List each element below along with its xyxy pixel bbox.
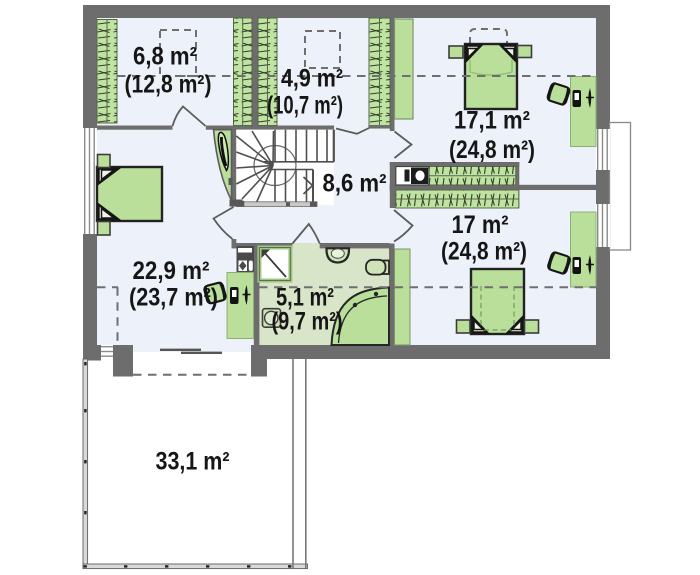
- svg-text:(9,7 m²): (9,7 m²): [272, 308, 343, 336]
- svg-text:6,8 m²: 6,8 m²: [133, 43, 197, 71]
- svg-text:(10,7 m²): (10,7 m²): [267, 92, 343, 120]
- svg-text:(12,8 m²): (12,8 m²): [125, 71, 212, 99]
- svg-text:(24,8 m²): (24,8 m²): [441, 238, 527, 266]
- svg-text:4,9 m²: 4,9 m²: [281, 65, 343, 93]
- svg-text:17,1 m²: 17,1 m²: [454, 106, 530, 134]
- svg-text:(24,8 m²): (24,8 m²): [449, 136, 535, 164]
- svg-text:8,6 m²: 8,6 m²: [323, 170, 387, 198]
- svg-text:22,9 m²: 22,9 m²: [133, 257, 210, 285]
- svg-text:17 m²: 17 m²: [452, 211, 509, 239]
- svg-text:33,1 m²: 33,1 m²: [156, 448, 230, 476]
- svg-text:(23,7 m²): (23,7 m²): [129, 284, 218, 312]
